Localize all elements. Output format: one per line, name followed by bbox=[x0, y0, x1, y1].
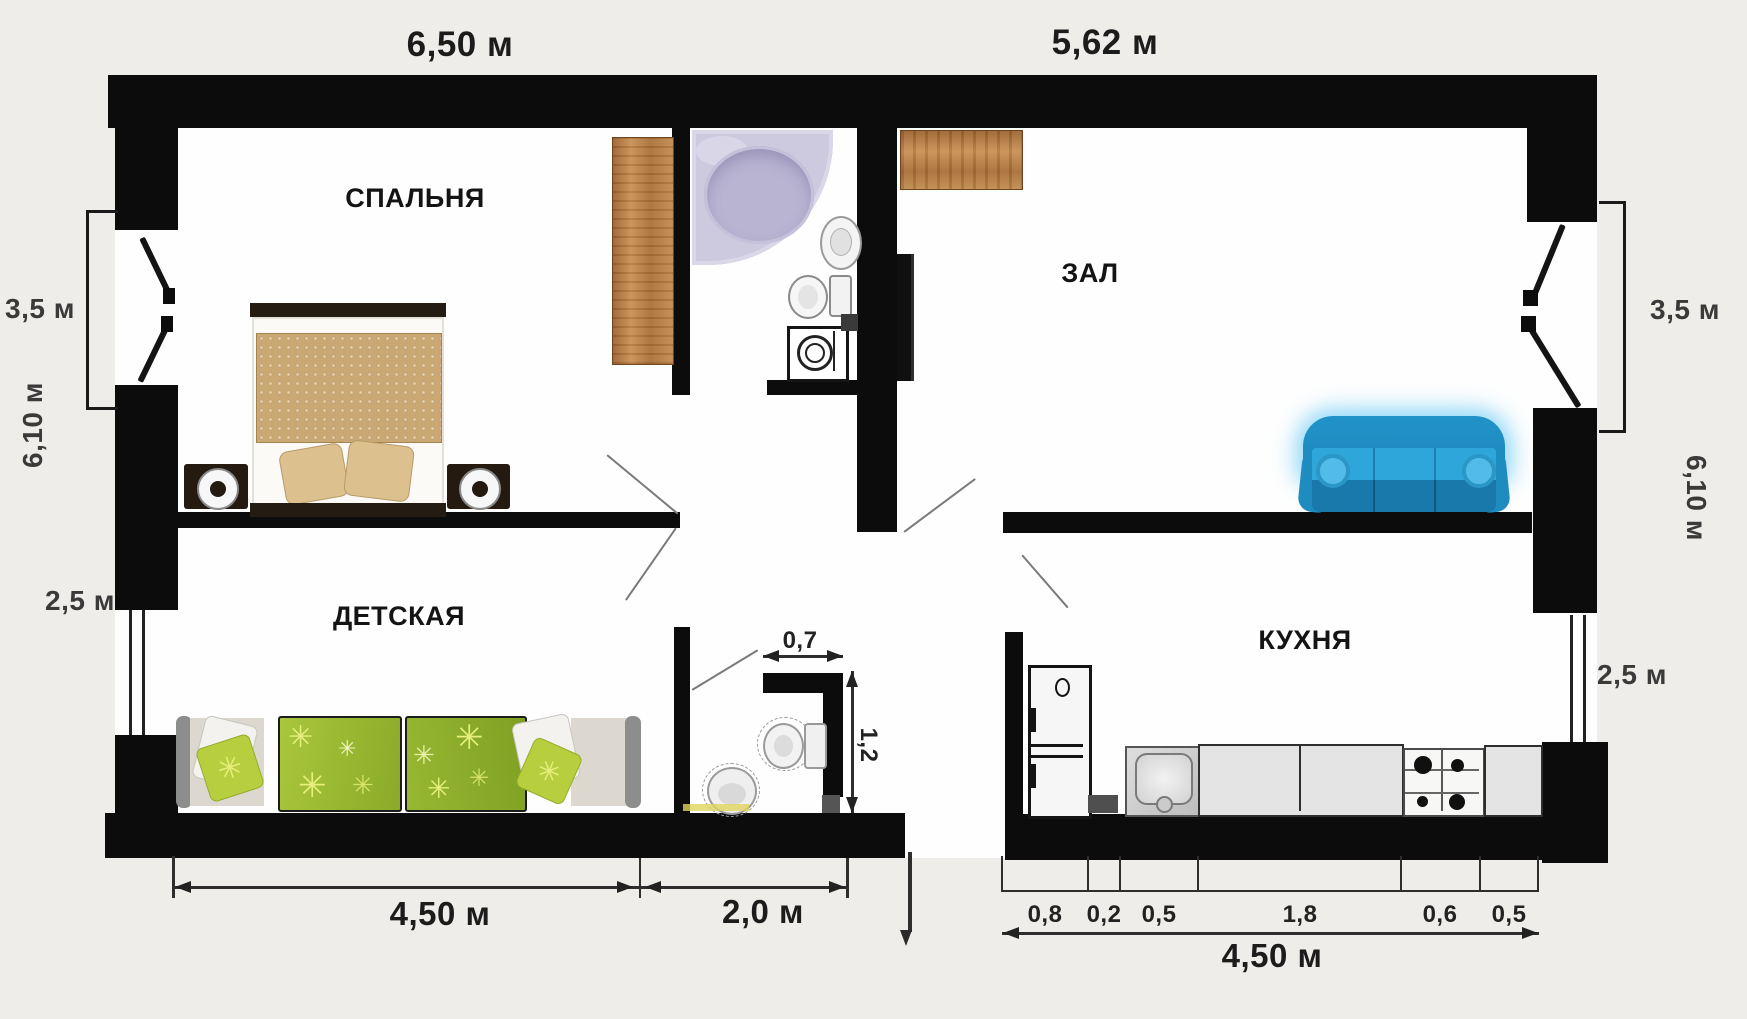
wall-kitchen-left bbox=[1005, 632, 1023, 815]
dresser-icon bbox=[900, 130, 1023, 190]
dim-ladder-line bbox=[1002, 890, 1539, 892]
arrow-icon bbox=[1003, 927, 1019, 939]
arrow-icon bbox=[827, 650, 843, 662]
counter-divider bbox=[1299, 746, 1301, 811]
star-decoration: ✳ bbox=[213, 747, 248, 788]
stove-burner bbox=[1414, 756, 1432, 774]
wardrobe-icon bbox=[612, 137, 674, 365]
arrow-icon bbox=[846, 671, 858, 687]
sofa-cushion-right bbox=[1462, 454, 1496, 488]
star-decoration: ✳ bbox=[288, 720, 313, 755]
dim-wc-width: 0,7 bbox=[770, 626, 830, 656]
stove-burner bbox=[1417, 796, 1428, 807]
kids-label: ДЕТСКАЯ bbox=[299, 598, 499, 634]
dim-line-bottom-left bbox=[173, 886, 848, 889]
wall-wc-stub bbox=[822, 795, 840, 813]
wall-bathroom-bottom bbox=[767, 380, 857, 395]
dim-tick bbox=[1537, 856, 1539, 892]
arrow-icon bbox=[617, 881, 633, 893]
star-decoration: ✳ bbox=[413, 740, 435, 771]
washer-drum bbox=[797, 335, 833, 371]
fridge-icon bbox=[1028, 665, 1092, 819]
bed-blanket bbox=[256, 333, 442, 443]
entrance-arrow-icon bbox=[900, 930, 912, 946]
toilet-bowl-inner bbox=[774, 735, 793, 757]
sink-faucet bbox=[1156, 796, 1173, 813]
stove-icon bbox=[1403, 748, 1485, 817]
green-blanket: ✳ ✳ ✳ ✳ bbox=[278, 716, 402, 812]
wall-wc-top bbox=[763, 673, 843, 693]
bed-end-bar bbox=[625, 716, 641, 808]
dim-tick bbox=[1087, 856, 1089, 892]
dim-left-balcony: 3,5 м bbox=[0, 292, 80, 326]
lamp-left-center bbox=[210, 481, 226, 497]
dim-tick bbox=[1400, 856, 1402, 892]
sofa-seam bbox=[1434, 480, 1436, 512]
wall-bottom-left bbox=[105, 813, 905, 858]
bed-head-bar bbox=[250, 503, 446, 517]
fridge-handle-bottom bbox=[1031, 764, 1036, 788]
wc-toilet-icon bbox=[763, 721, 825, 767]
bed-pillow-left bbox=[278, 442, 350, 506]
star-decoration: ✳ bbox=[338, 736, 356, 762]
bathroom-toilet-icon bbox=[788, 273, 850, 317]
sofa-icon bbox=[1300, 414, 1508, 514]
left-balcony-outline bbox=[86, 210, 118, 410]
wall-left-upper bbox=[115, 128, 178, 230]
wall-wc-left bbox=[674, 627, 690, 813]
kitchen-counter-end-icon bbox=[1484, 745, 1543, 817]
star-decoration: ✳ bbox=[469, 764, 489, 793]
bedroom-label: СПАЛЬНЯ bbox=[315, 180, 515, 216]
left-window bbox=[129, 610, 145, 735]
floor-plan: СПАЛЬНЯ ЗАЛ bbox=[0, 0, 1747, 1019]
dim-kitchen-seg-5: 0,6 bbox=[1400, 900, 1480, 930]
bathtub-basin bbox=[704, 146, 814, 244]
fridge-handle-top bbox=[1031, 708, 1036, 732]
star-decoration: ✳ bbox=[455, 718, 484, 758]
toilet-bowl bbox=[763, 723, 804, 769]
wall-bottom-kitchen bbox=[1005, 814, 1608, 860]
star-decoration: ✳ bbox=[532, 751, 567, 791]
lamp-right-center bbox=[472, 481, 488, 497]
fridge-divider bbox=[1031, 744, 1083, 758]
dim-kitchen-seg-6: 0,5 bbox=[1469, 900, 1549, 930]
dim-top-left: 6,50 м bbox=[350, 24, 570, 66]
dim-kitchen-total: 4,50 м bbox=[1172, 938, 1372, 974]
toilet-cistern bbox=[829, 275, 852, 317]
arrow-icon bbox=[763, 650, 779, 662]
washer-drum-inner bbox=[805, 343, 825, 363]
bathroom-box bbox=[841, 314, 858, 331]
stove-grid bbox=[1441, 750, 1443, 811]
kitchen-sink-icon bbox=[1125, 746, 1202, 817]
stove-burner bbox=[1449, 794, 1465, 810]
washer-panel bbox=[833, 331, 844, 371]
kitchen-box bbox=[1088, 795, 1118, 813]
dim-line-kitchen-total bbox=[1002, 932, 1539, 935]
kitchen-label: КУХНЯ bbox=[1205, 622, 1405, 658]
lamp-right-icon bbox=[459, 468, 501, 510]
dim-hall-width: 2,0 м bbox=[688, 892, 838, 932]
wall-right-corner bbox=[1542, 742, 1608, 863]
dim-right-balcony: 3,5 м bbox=[1630, 292, 1740, 328]
star-decoration: ✳ bbox=[298, 766, 327, 806]
dim-tick bbox=[1119, 856, 1121, 892]
dim-tick bbox=[1001, 856, 1003, 892]
stove-grid bbox=[1405, 792, 1479, 794]
sofa-seam bbox=[1373, 480, 1375, 512]
left-door-hinge-top bbox=[163, 288, 175, 304]
dim-wc-depth: 1,2 bbox=[853, 715, 883, 775]
dim-left-window: 2,5 м bbox=[30, 584, 130, 618]
dim-tick bbox=[1479, 856, 1481, 892]
right-door-hinge-bottom bbox=[1521, 316, 1536, 332]
arrow-icon bbox=[1522, 927, 1538, 939]
washbasin-bowl bbox=[718, 783, 746, 805]
fridge-logo bbox=[1055, 678, 1070, 697]
kids-bed-right-icon: ✳ ✳ ✳ ✳ ✳ bbox=[405, 714, 641, 810]
wall-right-upper bbox=[1527, 128, 1597, 222]
nightstand-right-icon bbox=[447, 464, 510, 509]
toilet-bowl-inner bbox=[798, 285, 818, 309]
dim-top-right: 5,62 м bbox=[995, 22, 1215, 64]
toilet-bowl bbox=[788, 275, 828, 319]
arrow-icon bbox=[645, 881, 661, 893]
star-decoration: ✳ bbox=[427, 772, 450, 805]
wall-bathroom-right bbox=[857, 128, 897, 532]
wall-left-middle bbox=[115, 385, 178, 610]
dim-kitchen-seg-3: 0,5 bbox=[1119, 900, 1199, 930]
dim-kitchen-seg-4: 1,8 bbox=[1260, 900, 1340, 930]
lamp-left-icon bbox=[197, 468, 239, 510]
wall-top bbox=[108, 75, 1597, 128]
left-door-hinge-bottom bbox=[161, 316, 173, 332]
bed-foot-bar bbox=[250, 303, 446, 317]
wc-threshold bbox=[683, 804, 749, 811]
dim-right-side: 6,10 м bbox=[1681, 438, 1711, 558]
dim-tick bbox=[846, 858, 849, 898]
dim-left-side: 6,10 м bbox=[18, 365, 48, 485]
entrance-arrow-line bbox=[908, 852, 912, 932]
dim-tick bbox=[1197, 856, 1199, 892]
dim-tick bbox=[639, 858, 641, 898]
wall-right-middle bbox=[1533, 408, 1597, 613]
dim-kids-width: 4,50 м bbox=[340, 894, 540, 934]
wall-living-bottom bbox=[1003, 512, 1532, 533]
bathroom-washbasin-icon bbox=[820, 216, 862, 270]
kitchen-counter-icon bbox=[1198, 744, 1404, 817]
stove-burner bbox=[1451, 759, 1464, 772]
living-label: ЗАЛ bbox=[1030, 255, 1150, 291]
arrow-icon bbox=[846, 797, 858, 813]
toilet-cistern bbox=[804, 723, 827, 769]
star-decoration: ✳ bbox=[352, 770, 374, 801]
tv-icon bbox=[897, 254, 914, 381]
dim-right-window: 2,5 м bbox=[1582, 658, 1682, 692]
right-door-hinge-top bbox=[1523, 290, 1538, 306]
washing-machine-icon bbox=[787, 326, 849, 382]
sofa-cushion-left bbox=[1316, 454, 1350, 488]
green-blanket: ✳ ✳ ✳ ✳ bbox=[405, 716, 527, 812]
kids-bed-left-icon: ✳ ✳ ✳ ✳ ✳ bbox=[176, 714, 398, 810]
washbasin-bowl bbox=[830, 228, 852, 256]
double-bed-icon bbox=[250, 303, 446, 517]
right-balcony-outline bbox=[1599, 201, 1626, 433]
arrow-icon bbox=[175, 881, 191, 893]
wall-bathroom-left bbox=[672, 128, 690, 395]
nightstand-left-icon bbox=[184, 464, 248, 509]
bed-pillow-right bbox=[343, 439, 415, 503]
